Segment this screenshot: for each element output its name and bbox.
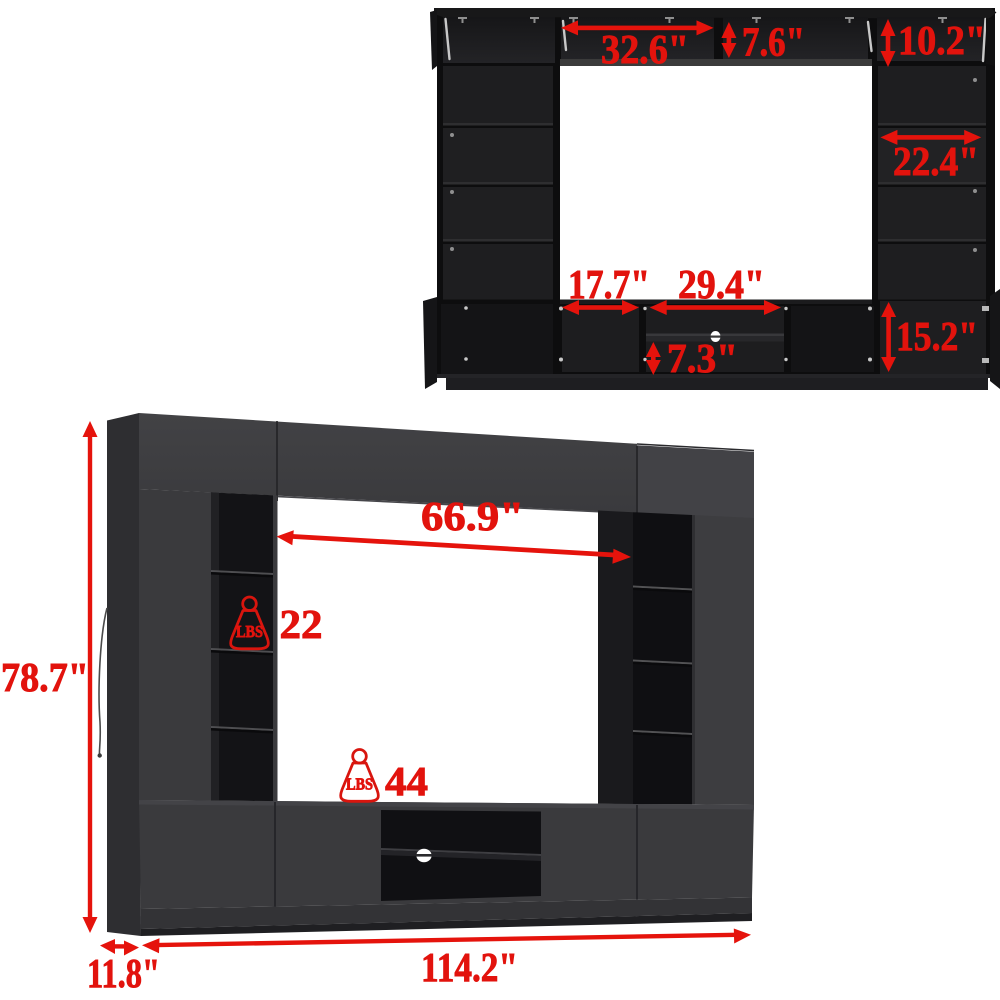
svg-text:LBS: LBS [346,775,373,794]
svg-text:10.2": 10.2" [898,17,986,63]
svg-text:11.8": 11.8" [87,950,160,996]
svg-text:22.4": 22.4" [893,138,979,184]
svg-text:22: 22 [280,601,323,647]
svg-text:32.6": 32.6" [601,26,689,72]
svg-text:29.4": 29.4" [678,261,765,307]
svg-text:LBS: LBS [236,622,263,641]
svg-text:78.7": 78.7" [1,654,89,700]
svg-text:7.6": 7.6" [742,19,805,65]
svg-text:114.2": 114.2" [421,944,518,990]
svg-text:17.7": 17.7" [568,261,650,307]
svg-text:66.9": 66.9" [421,493,524,539]
svg-text:7.3": 7.3" [667,335,738,381]
svg-text:44: 44 [385,758,428,804]
svg-text:15.2": 15.2" [896,313,978,359]
